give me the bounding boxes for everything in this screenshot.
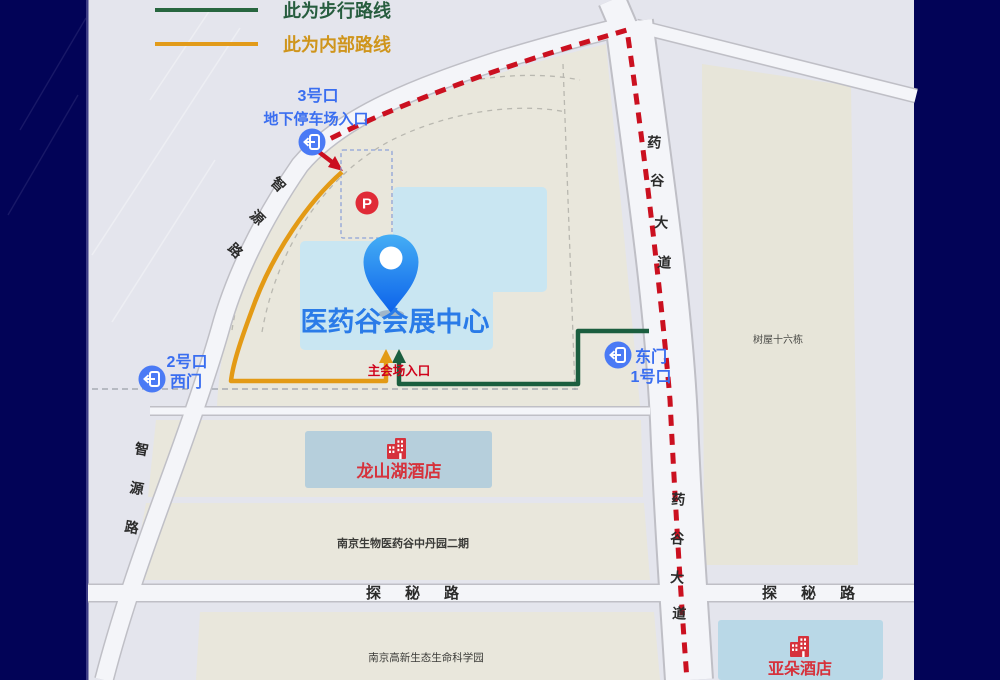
zhongdan-park-label: 南京生物医药谷中丹园二期 xyxy=(337,536,469,550)
parking-icon: P xyxy=(356,192,379,215)
main-entrance-label: 主会场入口 xyxy=(368,363,431,378)
map-screenshot: P 医药谷会展中心 主会场入口 3号口 地下停车场入口 2号口 西门 东门 1号… xyxy=(0,0,1000,680)
gate3-label-line2: 地下停车场入口 xyxy=(263,110,368,128)
tanmi-road-label-left: 探秘路 xyxy=(366,584,483,602)
east-gate-label-line1: 东门 xyxy=(635,347,667,366)
gate2-label-line2: 西门 xyxy=(170,372,202,391)
gate2-label-line1: 2号口 xyxy=(167,353,208,371)
east-gate-exit-icon xyxy=(605,342,632,369)
tanmi-road-label-right: 探秘路 xyxy=(762,584,879,602)
venue-map: P 医药谷会展中心 主会场入口 3号口 地下停车场入口 2号口 西门 东门 1号… xyxy=(0,0,1000,680)
parking-icon-letter: P xyxy=(362,196,372,213)
venue-title: 医药谷会展中心 xyxy=(301,307,490,337)
gate3-exit-icon xyxy=(299,129,326,156)
longshan-hotel-label: 龙山湖酒店 xyxy=(356,461,442,481)
legend-internal-label: 此为内部路线 xyxy=(283,34,391,55)
lifescience-parcel xyxy=(196,612,660,680)
location-pin-hole xyxy=(380,247,403,270)
gate2-exit-icon xyxy=(139,366,166,393)
gate3-label-line1: 3号口 xyxy=(298,87,339,105)
treehouse-label: 树屋十六栋 xyxy=(753,333,803,346)
treehouse-parcel xyxy=(702,64,858,565)
legend-walk-label: 此为步行路线 xyxy=(283,0,391,21)
map-left-divider xyxy=(86,0,89,680)
atour-hotel-label: 亚朵酒店 xyxy=(768,659,832,678)
lifescience-park-label: 南京高新生态生命科学园 xyxy=(368,651,484,664)
east-gate-label-line2: 1号口 xyxy=(631,368,672,386)
